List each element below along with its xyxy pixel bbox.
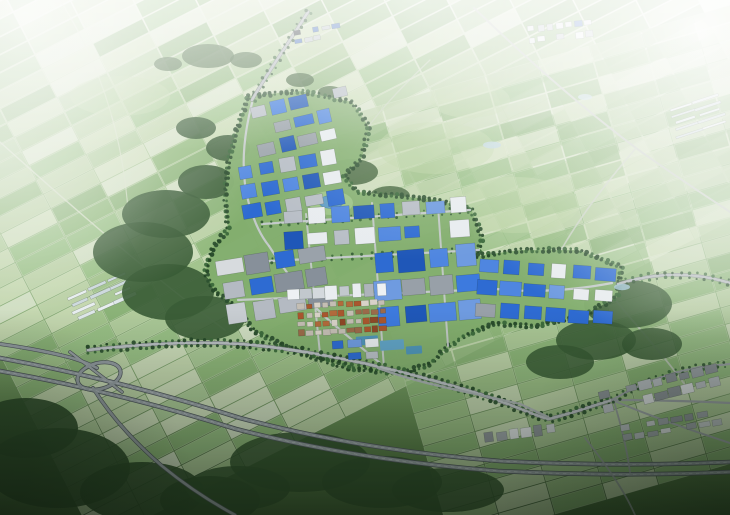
street-trees bbox=[351, 253, 354, 256]
house bbox=[330, 301, 337, 307]
house bbox=[378, 300, 385, 305]
factory bbox=[284, 231, 304, 250]
street-trees bbox=[341, 258, 343, 260]
commercial-building bbox=[364, 283, 374, 297]
house bbox=[314, 302, 321, 308]
factory bbox=[477, 279, 498, 295]
boundary-trees bbox=[210, 252, 215, 257]
house bbox=[338, 301, 344, 306]
house bbox=[306, 304, 312, 309]
aerial-rendering-canvas bbox=[0, 0, 730, 515]
factory bbox=[274, 250, 296, 269]
boundary-trees bbox=[206, 273, 210, 277]
house bbox=[297, 303, 305, 309]
street-trees bbox=[360, 258, 362, 260]
boundary-trees bbox=[216, 291, 220, 295]
boundary-trees bbox=[208, 258, 212, 262]
factory bbox=[244, 252, 271, 275]
boundary-trees bbox=[481, 255, 485, 259]
factory bbox=[305, 267, 328, 288]
factory bbox=[401, 278, 426, 296]
street-trees bbox=[261, 221, 264, 224]
street-trees bbox=[340, 254, 342, 256]
commercial-building bbox=[312, 287, 325, 299]
street-trees bbox=[330, 259, 332, 261]
factory bbox=[249, 276, 274, 295]
factory bbox=[499, 281, 522, 297]
street-trees bbox=[351, 258, 354, 261]
boundary-trees bbox=[210, 283, 214, 287]
commercial-building bbox=[339, 286, 349, 296]
commercial-building bbox=[352, 283, 361, 297]
street-trees bbox=[279, 223, 282, 226]
factory bbox=[429, 274, 454, 295]
house bbox=[361, 300, 369, 306]
street-trees bbox=[269, 225, 272, 228]
street-trees bbox=[261, 226, 263, 228]
boundary-trees bbox=[205, 269, 209, 273]
commercial-building bbox=[377, 283, 387, 296]
boundary-trees bbox=[208, 279, 211, 282]
commercial-building bbox=[324, 285, 337, 300]
street-trees bbox=[370, 257, 373, 260]
commercial-building bbox=[287, 289, 300, 300]
house bbox=[370, 299, 378, 305]
house bbox=[346, 301, 353, 307]
boundary-trees bbox=[214, 288, 218, 292]
commercial-building bbox=[299, 288, 312, 299]
street-trees bbox=[270, 261, 273, 264]
scene-svg bbox=[0, 0, 730, 515]
boundary-trees bbox=[206, 264, 209, 267]
street-trees bbox=[331, 255, 333, 257]
boundary-trees bbox=[230, 301, 233, 304]
street-trees bbox=[271, 257, 273, 259]
street-trees bbox=[270, 220, 272, 222]
factory bbox=[223, 280, 246, 300]
house bbox=[322, 302, 328, 308]
